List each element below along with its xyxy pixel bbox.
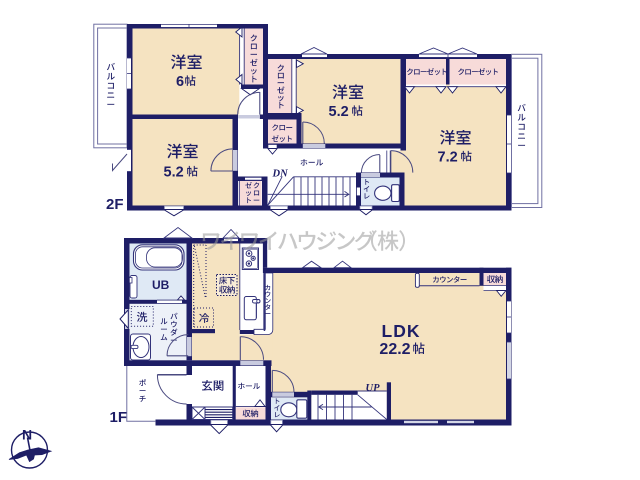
svg-text:2F: 2F (106, 196, 124, 213)
svg-text:7.2: 7.2 (438, 150, 458, 166)
svg-text:N: N (22, 427, 32, 443)
svg-text:UB: UB (152, 278, 170, 292)
svg-text:5.2: 5.2 (329, 104, 349, 120)
svg-text:5.2: 5.2 (164, 165, 184, 181)
svg-text:1F: 1F (110, 409, 128, 426)
svg-text:LDK: LDK (382, 321, 421, 341)
svg-text:22.2: 22.2 (379, 341, 410, 358)
svg-text:6: 6 (176, 74, 184, 90)
svg-text:UP: UP (366, 383, 381, 394)
svg-text:DN: DN (272, 169, 289, 180)
